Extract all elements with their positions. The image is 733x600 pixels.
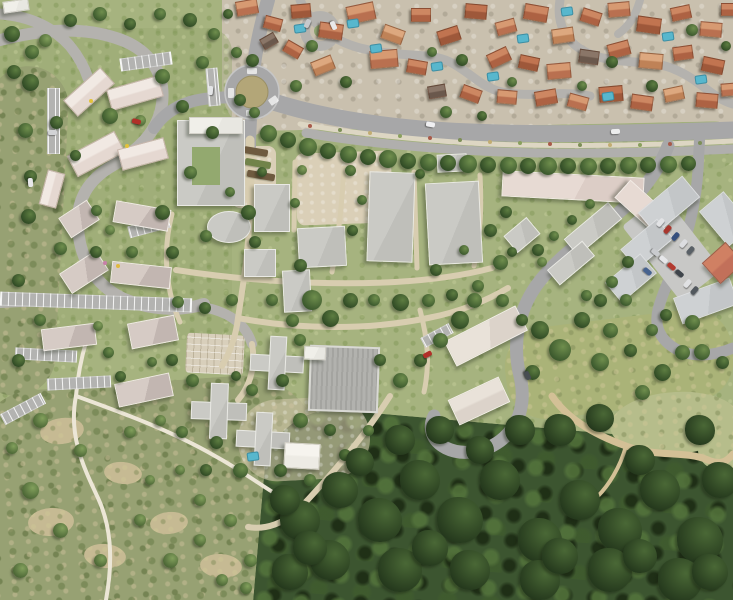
tree-60 bbox=[172, 296, 184, 308]
tree-206 bbox=[244, 554, 257, 567]
tree-154 bbox=[477, 111, 487, 121]
flower-dot-2 bbox=[368, 131, 372, 135]
tree-33 bbox=[231, 47, 242, 58]
car-21 bbox=[48, 130, 57, 135]
tree-0 bbox=[260, 125, 277, 142]
tree-113 bbox=[363, 425, 374, 436]
flower-dot-17 bbox=[116, 264, 120, 268]
tree-121 bbox=[549, 339, 571, 361]
tree-115 bbox=[549, 231, 559, 241]
tree-51 bbox=[91, 205, 102, 216]
tree-21 bbox=[681, 156, 696, 171]
car-12 bbox=[610, 128, 619, 133]
tree-11 bbox=[480, 157, 496, 173]
tree-127 bbox=[646, 324, 658, 336]
house-2 bbox=[290, 3, 311, 19]
tree-189 bbox=[623, 539, 657, 573]
tree-183 bbox=[385, 425, 415, 455]
tree-56 bbox=[12, 354, 25, 367]
tree-39 bbox=[196, 56, 209, 69]
tree-100 bbox=[246, 384, 258, 396]
flower-dot-14 bbox=[89, 99, 93, 103]
tree-111 bbox=[155, 415, 166, 426]
tree-87 bbox=[484, 224, 497, 237]
flower-dot-5 bbox=[458, 138, 462, 142]
tree-82 bbox=[297, 165, 307, 175]
flower-dot-13 bbox=[698, 141, 702, 145]
tree-80 bbox=[415, 169, 425, 179]
house-24 bbox=[546, 62, 571, 80]
tree-135 bbox=[496, 294, 509, 307]
tree-131 bbox=[660, 309, 672, 321]
crosswalk-1 bbox=[228, 88, 234, 98]
tree-67 bbox=[302, 290, 322, 310]
tree-201 bbox=[194, 494, 206, 506]
tree-41 bbox=[54, 242, 67, 255]
tree-167 bbox=[640, 470, 680, 510]
tree-75 bbox=[472, 280, 484, 292]
car-15 bbox=[27, 177, 33, 186]
building-campus-b1 bbox=[254, 184, 290, 232]
tree-71 bbox=[368, 294, 380, 306]
tree-120 bbox=[531, 321, 549, 339]
tree-88 bbox=[493, 255, 508, 270]
tree-187 bbox=[412, 530, 448, 566]
tree-136 bbox=[516, 314, 528, 326]
tree-1 bbox=[280, 132, 296, 148]
tree-18 bbox=[620, 157, 637, 174]
tree-202 bbox=[224, 514, 237, 527]
tree-55 bbox=[34, 314, 46, 326]
tree-137 bbox=[694, 344, 710, 360]
house-20 bbox=[699, 21, 722, 38]
tree-92 bbox=[433, 333, 448, 348]
building-campus-b5 bbox=[366, 171, 415, 263]
tree-184 bbox=[346, 448, 374, 476]
tree-180 bbox=[505, 415, 535, 445]
tree-12 bbox=[500, 157, 517, 174]
flower-dot-10 bbox=[608, 143, 612, 147]
tree-48 bbox=[166, 246, 179, 259]
tree-105 bbox=[210, 436, 223, 449]
tree-2 bbox=[299, 138, 317, 156]
tree-99 bbox=[324, 424, 336, 436]
tree-191 bbox=[270, 485, 300, 515]
pool-6 bbox=[560, 6, 573, 17]
tree-57 bbox=[103, 347, 114, 358]
tree-74 bbox=[446, 289, 458, 301]
tree-144 bbox=[340, 76, 352, 88]
tree-117 bbox=[585, 199, 595, 209]
tree-150 bbox=[721, 41, 731, 51]
tree-140 bbox=[654, 364, 671, 381]
house-25 bbox=[578, 49, 600, 66]
building-sports-hall-entry bbox=[304, 346, 326, 361]
tree-188 bbox=[542, 538, 578, 574]
flower-dot-9 bbox=[578, 143, 582, 147]
tree-53 bbox=[70, 150, 81, 161]
tree-193 bbox=[74, 444, 87, 457]
tree-14 bbox=[539, 157, 557, 175]
tree-45 bbox=[102, 108, 118, 124]
tree-104 bbox=[147, 357, 157, 367]
tree-208 bbox=[6, 442, 18, 454]
tree-38 bbox=[176, 100, 189, 113]
tree-79 bbox=[357, 195, 367, 205]
house-30 bbox=[534, 88, 558, 107]
flower-dot-4 bbox=[428, 136, 432, 140]
tree-119 bbox=[606, 276, 618, 288]
tree-72 bbox=[392, 294, 409, 311]
pool-2 bbox=[369, 43, 382, 54]
tree-198 bbox=[163, 553, 178, 568]
tree-163 bbox=[480, 460, 520, 500]
tree-177 bbox=[685, 415, 715, 445]
tree-59 bbox=[93, 321, 103, 331]
tree-86 bbox=[459, 245, 469, 255]
tree-157 bbox=[249, 107, 260, 118]
tree-156 bbox=[234, 94, 246, 106]
tree-89 bbox=[500, 206, 512, 218]
tree-130 bbox=[581, 290, 592, 301]
tree-29 bbox=[154, 8, 166, 20]
tree-207 bbox=[216, 574, 228, 586]
flower-dot-16 bbox=[103, 261, 107, 265]
tree-149 bbox=[686, 24, 698, 36]
aerial-masterplan-view bbox=[0, 0, 733, 600]
tree-36 bbox=[50, 116, 63, 129]
house-27 bbox=[638, 52, 663, 70]
tree-83 bbox=[257, 167, 267, 177]
tree-209 bbox=[240, 582, 252, 594]
tree-6 bbox=[379, 150, 397, 168]
tree-199 bbox=[194, 534, 206, 546]
tree-146 bbox=[456, 54, 468, 66]
tree-194 bbox=[22, 482, 39, 499]
tree-3 bbox=[320, 143, 336, 159]
tree-31 bbox=[208, 28, 220, 40]
tree-90 bbox=[467, 293, 482, 308]
tree-165 bbox=[560, 480, 600, 520]
tree-181 bbox=[466, 436, 494, 464]
flower-dot-8 bbox=[548, 142, 552, 146]
flower-dot-1 bbox=[338, 128, 342, 132]
tree-46 bbox=[90, 246, 102, 258]
tree-103 bbox=[166, 354, 178, 366]
tree-118 bbox=[622, 256, 634, 268]
tree-8 bbox=[420, 154, 437, 171]
tree-15 bbox=[560, 158, 576, 174]
tree-24 bbox=[7, 65, 21, 79]
tree-176 bbox=[702, 462, 733, 498]
tree-185 bbox=[625, 445, 655, 475]
house-6 bbox=[411, 8, 431, 22]
tree-47 bbox=[126, 246, 138, 258]
tree-13 bbox=[520, 158, 536, 174]
tree-159 bbox=[322, 472, 358, 508]
tree-40 bbox=[21, 209, 36, 224]
tree-98 bbox=[293, 413, 308, 428]
tree-91 bbox=[451, 311, 469, 329]
crosswalk-0 bbox=[247, 68, 257, 74]
tree-37 bbox=[155, 69, 170, 84]
tree-26 bbox=[64, 14, 77, 27]
tree-32 bbox=[223, 9, 233, 19]
building-cross-building-3 bbox=[235, 411, 290, 466]
tree-148 bbox=[606, 56, 618, 68]
tree-142 bbox=[246, 54, 259, 67]
tree-65 bbox=[290, 198, 300, 208]
tree-95 bbox=[374, 354, 386, 366]
house-35 bbox=[695, 92, 718, 109]
tree-30 bbox=[183, 13, 197, 27]
tree-139 bbox=[675, 345, 690, 360]
tree-70 bbox=[343, 293, 358, 308]
tree-81 bbox=[345, 165, 356, 176]
tree-147 bbox=[507, 77, 517, 87]
tree-54 bbox=[12, 274, 25, 287]
tree-134 bbox=[507, 247, 517, 257]
flower-dot-11 bbox=[638, 143, 642, 147]
tree-200 bbox=[145, 475, 155, 485]
tree-96 bbox=[294, 334, 306, 346]
tree-128 bbox=[594, 294, 607, 307]
tree-85 bbox=[430, 264, 442, 276]
tree-16 bbox=[580, 158, 597, 175]
building-campus-b2 bbox=[244, 249, 276, 277]
tree-145 bbox=[427, 47, 437, 57]
tree-23 bbox=[25, 45, 39, 59]
pool-3 bbox=[430, 61, 443, 72]
tree-116 bbox=[567, 215, 577, 225]
pool-8 bbox=[661, 31, 674, 42]
tree-101 bbox=[231, 371, 241, 381]
building-campus-b6 bbox=[425, 181, 483, 266]
tree-94 bbox=[393, 373, 408, 388]
tree-186 bbox=[293, 531, 327, 565]
tree-5 bbox=[360, 149, 376, 165]
tree-129 bbox=[620, 294, 632, 306]
tree-68 bbox=[322, 310, 339, 327]
tree-106 bbox=[233, 463, 248, 478]
tree-122 bbox=[574, 312, 590, 328]
tree-64 bbox=[241, 205, 256, 220]
building-chapel bbox=[283, 442, 320, 470]
tree-10 bbox=[459, 155, 477, 173]
tree-27 bbox=[93, 7, 107, 21]
tree-143 bbox=[306, 40, 318, 52]
pool-9 bbox=[694, 74, 707, 85]
house-12 bbox=[464, 3, 487, 20]
tree-61 bbox=[199, 302, 211, 314]
flower-dot-7 bbox=[518, 141, 522, 145]
tree-28 bbox=[124, 18, 136, 30]
tree-66 bbox=[249, 236, 261, 248]
tree-152 bbox=[646, 80, 658, 92]
trail-forest-trail-spur bbox=[598, 446, 626, 496]
flower-dot-12 bbox=[668, 142, 672, 146]
tree-171 bbox=[450, 550, 490, 590]
tree-25 bbox=[39, 34, 52, 47]
flower-dot-6 bbox=[488, 140, 492, 144]
tree-153 bbox=[440, 106, 452, 118]
tree-63 bbox=[105, 225, 115, 235]
tree-197 bbox=[134, 514, 146, 526]
tree-110 bbox=[176, 426, 188, 438]
car-20 bbox=[207, 85, 213, 94]
tree-178 bbox=[544, 414, 576, 446]
tree-195 bbox=[53, 523, 68, 538]
tree-76 bbox=[294, 259, 307, 272]
tree-35 bbox=[18, 123, 33, 138]
tree-108 bbox=[304, 474, 316, 486]
pool-7 bbox=[601, 91, 614, 102]
tree-73 bbox=[422, 294, 435, 307]
tree-7 bbox=[400, 153, 416, 169]
tree-204 bbox=[124, 426, 136, 438]
tree-109 bbox=[200, 464, 212, 476]
flower-dot-0 bbox=[308, 124, 312, 128]
tree-97 bbox=[276, 374, 289, 387]
building-campus-hq-court bbox=[192, 147, 220, 185]
tree-141 bbox=[635, 385, 650, 400]
flower-dot-15 bbox=[125, 144, 129, 148]
tree-84 bbox=[225, 187, 235, 197]
tree-78 bbox=[347, 225, 358, 236]
house-28 bbox=[672, 45, 694, 62]
car-13 bbox=[425, 121, 435, 127]
tree-77 bbox=[266, 294, 278, 306]
tree-205 bbox=[175, 465, 185, 475]
tree-179 bbox=[586, 404, 614, 432]
tree-107 bbox=[274, 464, 287, 477]
house-38 bbox=[427, 83, 447, 99]
tree-44 bbox=[206, 126, 219, 139]
pool-0 bbox=[346, 18, 359, 29]
tree-22 bbox=[4, 26, 20, 42]
tree-160 bbox=[358, 498, 402, 542]
tree-102 bbox=[186, 374, 199, 387]
house-17 bbox=[607, 1, 630, 18]
tree-4 bbox=[340, 146, 357, 163]
tree-155 bbox=[290, 80, 302, 92]
tree-58 bbox=[115, 371, 126, 382]
tree-133 bbox=[537, 257, 547, 267]
tree-43 bbox=[184, 166, 197, 179]
tree-126 bbox=[624, 344, 637, 357]
tree-114 bbox=[532, 244, 544, 256]
tree-203 bbox=[13, 563, 28, 578]
tree-19 bbox=[640, 157, 656, 173]
tree-34 bbox=[22, 74, 39, 91]
cross-building-2-arm-v bbox=[209, 383, 229, 440]
tree-190 bbox=[692, 554, 728, 590]
flower-dot-3 bbox=[398, 134, 402, 138]
tree-161 bbox=[400, 460, 440, 500]
tree-192 bbox=[33, 413, 48, 428]
tree-123 bbox=[603, 323, 618, 338]
tree-182 bbox=[426, 416, 454, 444]
tree-132 bbox=[685, 315, 700, 330]
tree-42 bbox=[155, 205, 170, 220]
house-15 bbox=[551, 26, 575, 44]
tree-20 bbox=[660, 156, 677, 173]
house-36 bbox=[720, 82, 733, 97]
tree-49 bbox=[200, 230, 212, 242]
house-21 bbox=[721, 3, 733, 16]
pool-5 bbox=[516, 33, 529, 44]
pool-4 bbox=[486, 71, 499, 82]
tree-196 bbox=[94, 554, 107, 567]
house-39 bbox=[496, 89, 517, 105]
tree-125 bbox=[591, 353, 609, 371]
tree-138 bbox=[716, 356, 729, 369]
trail-campus-walk-1 bbox=[294, 162, 295, 230]
tree-17 bbox=[600, 158, 616, 174]
pool-10 bbox=[246, 451, 259, 462]
tree-62 bbox=[226, 294, 238, 306]
tree-9 bbox=[440, 155, 456, 171]
house-33 bbox=[630, 93, 654, 111]
house-18 bbox=[636, 15, 662, 34]
tree-151 bbox=[577, 81, 587, 91]
tree-69 bbox=[286, 314, 299, 327]
